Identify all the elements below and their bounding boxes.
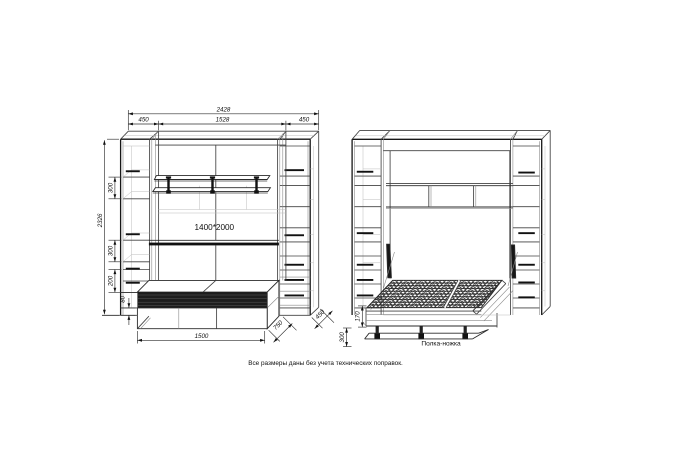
svg-text:170: 170 bbox=[354, 311, 361, 322]
svg-text:Полка-ножка: Полка-ножка bbox=[421, 341, 461, 348]
svg-text:450: 450 bbox=[299, 117, 310, 124]
svg-text:2326: 2326 bbox=[97, 213, 104, 228]
svg-text:2428: 2428 bbox=[216, 107, 231, 114]
svg-text:1400*2000: 1400*2000 bbox=[194, 223, 234, 232]
svg-text:450: 450 bbox=[138, 117, 149, 124]
svg-text:300: 300 bbox=[107, 182, 114, 193]
svg-text:Все размеры даны без учета тех: Все размеры даны без учета технических п… bbox=[248, 359, 403, 367]
svg-text:200: 200 bbox=[107, 275, 114, 287]
svg-text:300: 300 bbox=[107, 245, 114, 256]
svg-text:1528: 1528 bbox=[216, 117, 230, 124]
svg-text:1500: 1500 bbox=[195, 333, 209, 340]
svg-text:80: 80 bbox=[120, 295, 127, 302]
svg-text:300: 300 bbox=[339, 332, 346, 343]
